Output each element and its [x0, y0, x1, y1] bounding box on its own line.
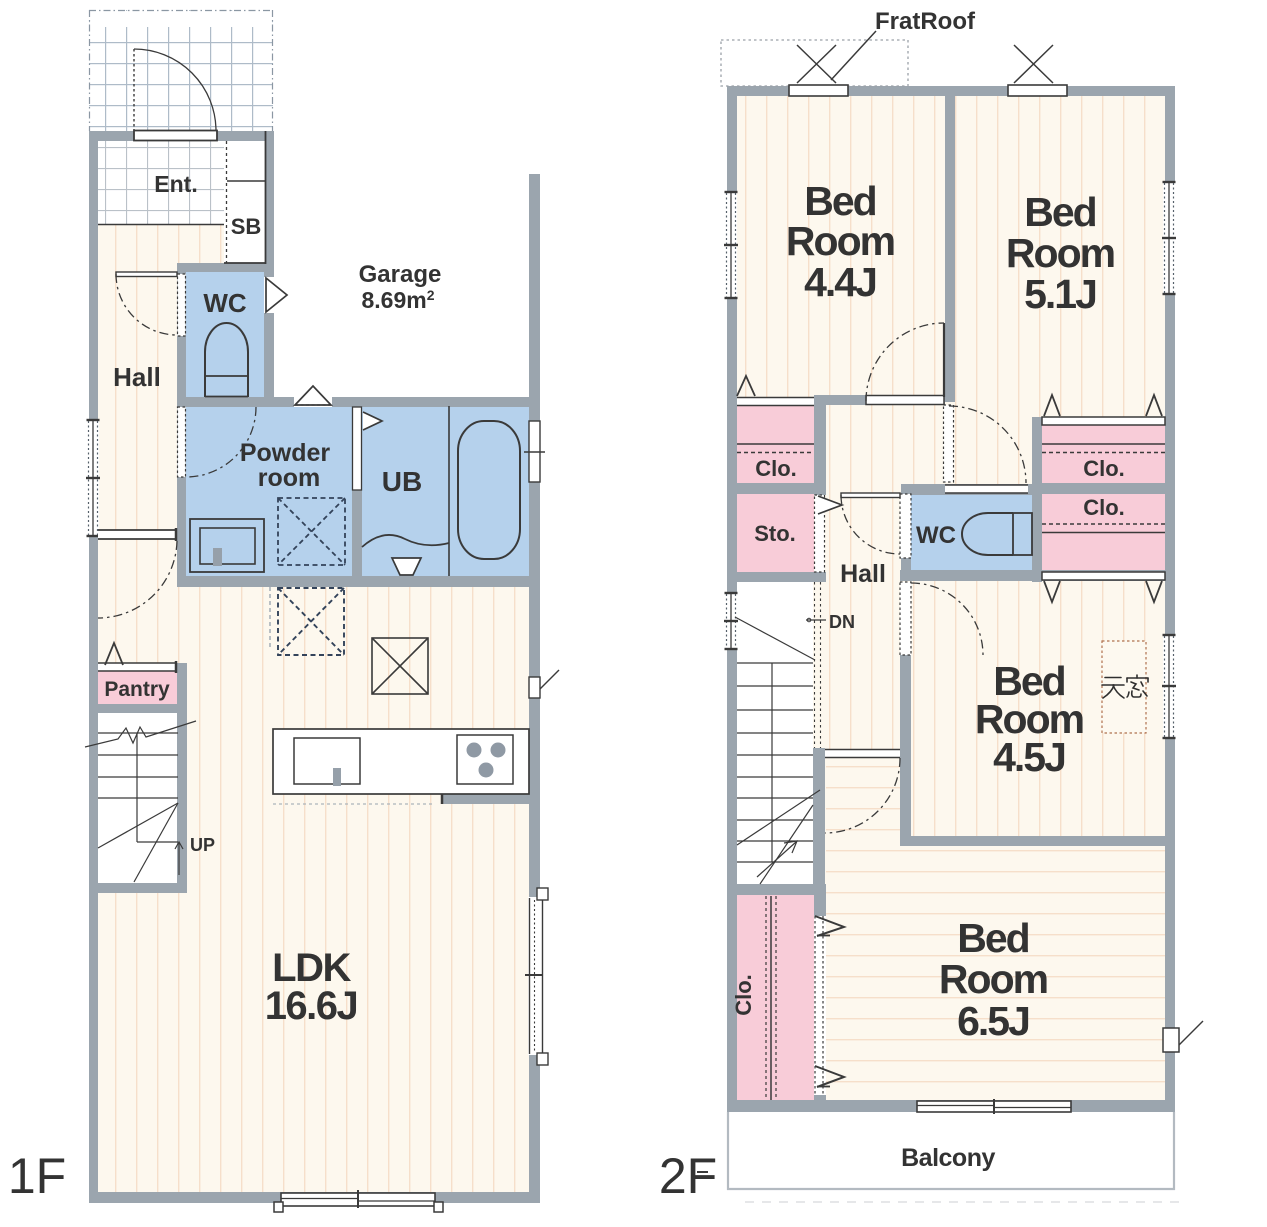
- svg-text:Clo.: Clo.: [1083, 456, 1125, 481]
- svg-text:Pantry: Pantry: [104, 678, 170, 701]
- svg-text:SB: SB: [231, 214, 262, 239]
- svg-text:4.5J: 4.5J: [993, 734, 1065, 780]
- svg-text:5.1J: 5.1J: [1024, 271, 1096, 317]
- svg-text:4.4J: 4.4J: [804, 259, 876, 305]
- svg-text:Ent.: Ent.: [154, 171, 197, 197]
- svg-text:UP: UP: [190, 835, 215, 855]
- svg-text:Bed: Bed: [957, 915, 1028, 961]
- svg-text:Hall: Hall: [840, 560, 886, 588]
- svg-text:WC: WC: [203, 288, 247, 318]
- svg-text:Sto.: Sto.: [754, 521, 796, 546]
- svg-text:Room: Room: [786, 218, 894, 264]
- svg-text:2F: 2F: [659, 1148, 717, 1204]
- svg-text:Room: Room: [1006, 230, 1114, 276]
- svg-text:Room: Room: [939, 956, 1047, 1002]
- svg-text:FratRoof: FratRoof: [875, 8, 976, 35]
- svg-text:DN: DN: [829, 612, 855, 632]
- svg-text:Bed: Bed: [1024, 189, 1095, 235]
- svg-text:6.5J: 6.5J: [957, 998, 1029, 1044]
- svg-text:Hall: Hall: [113, 362, 161, 392]
- svg-text:room: room: [258, 464, 321, 492]
- svg-text:Powder: Powder: [240, 439, 331, 467]
- svg-text:Balcony: Balcony: [901, 1144, 995, 1172]
- svg-text:1F: 1F: [8, 1148, 66, 1204]
- svg-text:8.69m2: 8.69m2: [361, 287, 434, 313]
- svg-text:UB: UB: [382, 466, 422, 497]
- svg-text:16.6J: 16.6J: [265, 984, 358, 1028]
- svg-text:Clo.: Clo.: [731, 974, 756, 1016]
- svg-text:Clo.: Clo.: [755, 456, 797, 481]
- svg-text:Garage: Garage: [359, 261, 442, 288]
- svg-text:Clo.: Clo.: [1083, 495, 1125, 520]
- svg-text:WC: WC: [916, 522, 956, 549]
